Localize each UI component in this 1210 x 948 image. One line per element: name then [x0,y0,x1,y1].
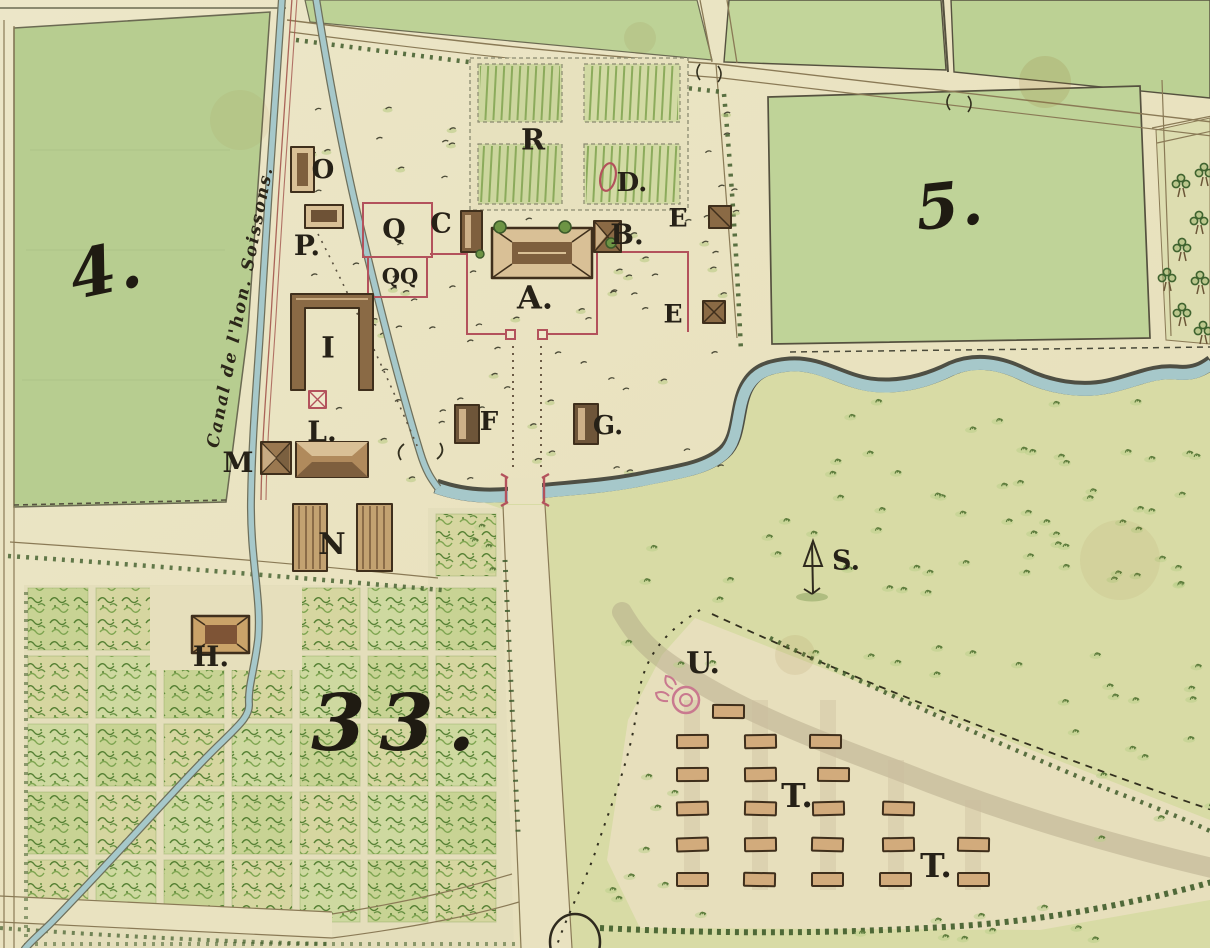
building-m [261,442,291,474]
orchard-cell-foliage [300,656,360,718]
orchard-cell-foliage [300,792,360,854]
building-p [305,205,343,228]
map-page: Canal de l'hon. Soissons. 4.5.33.OP.QQQC… [0,0,1210,948]
top-field-middle [724,0,946,70]
garden-plot-rows [586,146,678,202]
kitchen-garden-r [470,58,688,210]
map-canvas [0,0,1210,948]
orchard-cell-foliage [232,792,292,854]
orchard-cell-foliage [368,792,428,854]
camp-barrack [677,837,708,851]
building-f [455,405,479,443]
garden-plot-rows [586,66,678,120]
garden-plot-rows [480,66,560,120]
small-red-outbuilding [309,391,326,408]
gate-post [538,330,547,339]
building-e2 [703,301,725,323]
camp-barrack [958,873,989,886]
orchard-cell-foliage [436,724,496,786]
orchard-cell-foliage [96,724,156,786]
garden-plot-rows [480,146,560,202]
orchard-cell-foliage [28,588,88,650]
orchard-cell-foliage [436,656,496,718]
camp-barrack [677,768,708,781]
camp-barrack [883,838,914,852]
field-4-area [14,12,270,507]
camp-barrack [818,768,849,781]
building-o [291,147,314,192]
camp-barrack [883,802,914,816]
orchard-cell-foliage [96,656,156,718]
camp-barrack [677,873,708,886]
camp-barrack [745,838,776,851]
camp-barrack [745,802,776,816]
orchard-cell-foliage [368,724,428,786]
gate-post [506,330,515,339]
camp-barrack [880,873,911,886]
orchard-cell-foliage [436,860,496,922]
orchard-cell-foliage [28,792,88,854]
orchard-cell-foliage [164,724,224,786]
building-c [461,211,482,252]
camp-barrack [744,873,775,887]
camp-barrack [813,802,844,816]
orchard-cell-foliage [232,724,292,786]
camp-barrack [812,838,843,852]
camp-barrack [713,705,744,718]
camp-barrack [745,768,776,782]
building-e1 [709,206,731,228]
bridge-deck [508,478,542,504]
orchard-cell-foliage [436,588,496,650]
building-h [192,616,249,653]
orchard-cell-foliage [436,792,496,854]
orchard-cell-foliage [300,724,360,786]
orchard-cell-foliage [300,588,360,650]
orchard-cell-foliage [164,792,224,854]
camp-barrack [810,735,841,748]
camp-barrack [677,802,708,816]
camp-barrack [812,873,843,886]
camp-barrack [745,735,776,749]
orchard-cell-foliage [368,656,428,718]
orchard-cell-foliage [28,724,88,786]
camp-barrack [677,735,708,748]
orchard-cell-foliage [368,860,428,922]
field-5-area [768,86,1150,344]
building-a-chateau [492,228,592,278]
camp-barrack [958,838,989,852]
orchard-cell-foliage [28,656,88,718]
orchard-cell-foliage [368,588,428,650]
orchard-cell-foliage [96,588,156,650]
building-g [574,404,598,444]
building-l [296,442,368,477]
